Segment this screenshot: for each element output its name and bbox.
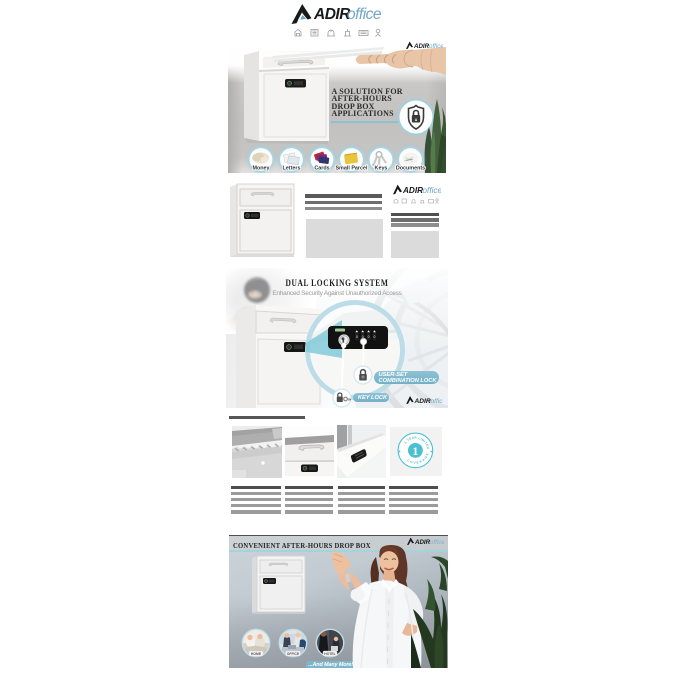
svg-text:Money: Money	[252, 166, 269, 172]
svg-text:office: office	[347, 6, 382, 23]
svg-text:ADIR: ADIR	[402, 186, 423, 195]
svg-text:OFFICE: OFFICE	[287, 651, 300, 655]
svg-text:Keys: Keys	[375, 166, 388, 172]
svg-text:ADIR: ADIR	[313, 6, 351, 23]
svg-text:Documents: Documents	[396, 166, 425, 172]
svg-text:Small Parcel: Small Parcel	[335, 166, 368, 172]
svg-text:Letters: Letters	[283, 166, 301, 172]
svg-text:office: office	[429, 43, 443, 50]
svg-text:1: 1	[412, 444, 418, 458]
svg-text:HOTEL: HOTEL	[325, 651, 337, 655]
svg-text:ADIR: ADIR	[413, 43, 430, 50]
svg-text:HOME: HOME	[251, 651, 262, 655]
svg-text:office: office	[431, 398, 444, 405]
svg-text:Cards: Cards	[314, 166, 329, 172]
svg-text:office: office	[423, 186, 442, 195]
svg-text:ADIR: ADIR	[414, 398, 431, 405]
